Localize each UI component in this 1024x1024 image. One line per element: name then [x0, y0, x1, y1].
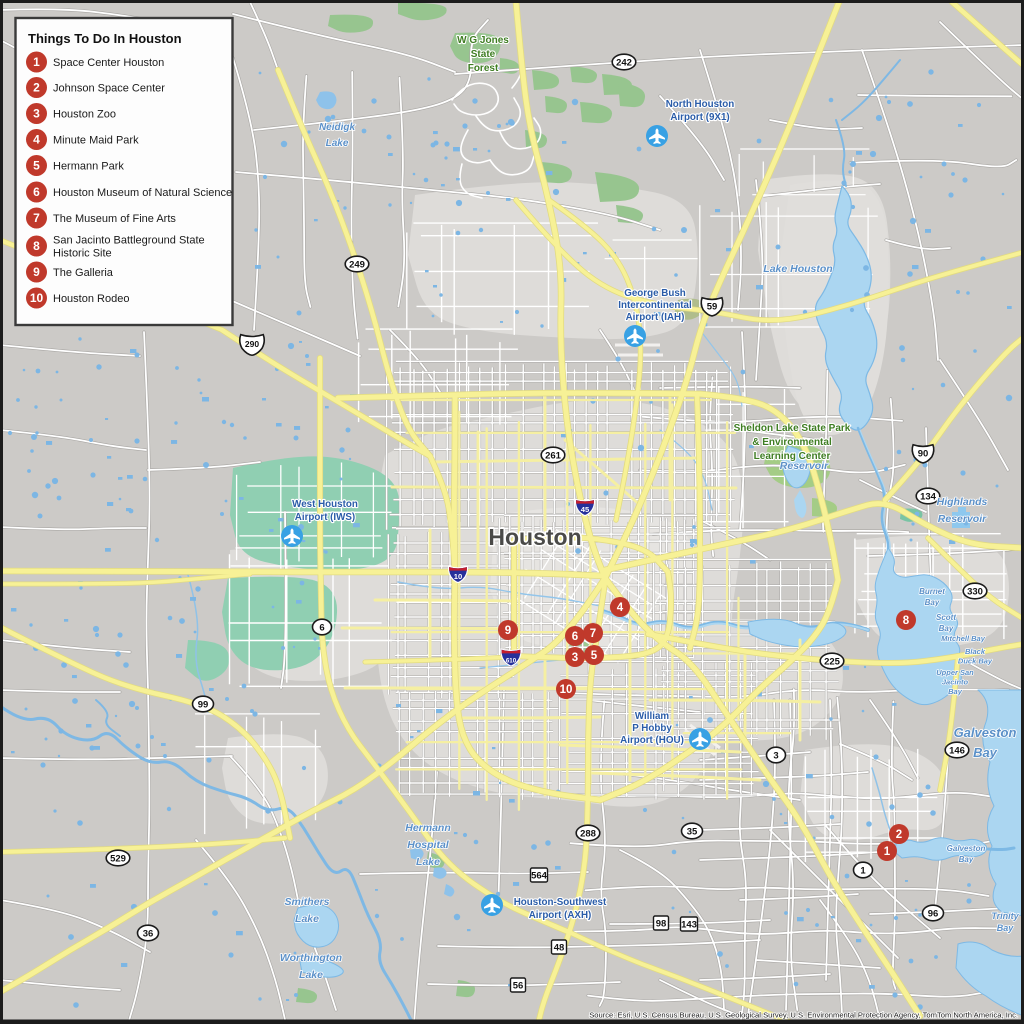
svg-text:P Hobby: P Hobby	[632, 723, 672, 734]
svg-text:Lake: Lake	[416, 856, 440, 868]
svg-text:Minute Maid Park: Minute Maid Park	[53, 135, 139, 147]
svg-text:Airport (IAH): Airport (IAH)	[626, 312, 685, 323]
svg-text:Lake: Lake	[326, 138, 349, 149]
svg-text:98: 98	[656, 918, 667, 929]
svg-text:State: State	[471, 49, 496, 60]
svg-text:Houston-Southwest: Houston-Southwest	[514, 897, 607, 908]
svg-text:Airport (9X1): Airport (9X1)	[670, 112, 729, 123]
svg-text:Smithers: Smithers	[285, 896, 330, 908]
svg-text:Upper San: Upper San	[936, 668, 974, 677]
svg-text:330: 330	[967, 586, 983, 597]
svg-text:Airport (AXH): Airport (AXH)	[529, 910, 592, 921]
svg-text:10: 10	[30, 291, 44, 305]
svg-text:6: 6	[319, 622, 324, 633]
svg-text:146: 146	[949, 745, 965, 756]
svg-text:134: 134	[920, 491, 937, 502]
svg-text:10: 10	[454, 572, 462, 581]
svg-text:Airport (HOU): Airport (HOU)	[620, 735, 684, 746]
svg-text:Galveston: Galveston	[947, 844, 986, 853]
svg-text:Hermann: Hermann	[405, 822, 451, 834]
svg-text:564: 564	[531, 870, 548, 881]
svg-text:Hospital: Hospital	[407, 839, 450, 851]
svg-text:6: 6	[33, 185, 40, 199]
svg-text:9: 9	[33, 265, 40, 279]
svg-text:7: 7	[590, 628, 596, 640]
svg-text:The Museum of Fine Arts: The Museum of Fine Arts	[53, 213, 176, 225]
svg-text:West Houston: West Houston	[292, 499, 358, 510]
svg-text:Things To Do In Houston: Things To Do In Houston	[28, 31, 182, 46]
svg-text:225: 225	[824, 656, 841, 667]
svg-text:Lake Houston: Lake Houston	[763, 263, 832, 275]
svg-text:Neidigk: Neidigk	[319, 122, 356, 133]
svg-text:96: 96	[928, 908, 939, 919]
svg-text:& Environmental: & Environmental	[752, 437, 832, 448]
svg-text:Lake: Lake	[295, 913, 319, 925]
svg-text:Worthington: Worthington	[280, 952, 342, 964]
svg-text:8: 8	[33, 239, 40, 253]
svg-text:Bay: Bay	[959, 855, 974, 864]
svg-text:William: William	[635, 711, 669, 722]
svg-text:7: 7	[33, 211, 40, 225]
svg-text:Lake: Lake	[299, 969, 323, 981]
svg-text:99: 99	[198, 699, 209, 710]
svg-text:Houston Zoo: Houston Zoo	[53, 109, 116, 121]
svg-text:Forest: Forest	[468, 63, 499, 74]
svg-text:8: 8	[903, 615, 910, 627]
svg-text:Bay: Bay	[939, 624, 954, 633]
svg-text:Space Center Houston: Space Center Houston	[53, 57, 164, 69]
svg-text:6: 6	[572, 631, 578, 643]
svg-text:59: 59	[707, 302, 718, 313]
svg-text:Hermann Park: Hermann Park	[53, 161, 124, 173]
svg-text:290: 290	[245, 339, 259, 349]
svg-text:Bay: Bay	[997, 923, 1015, 933]
svg-text:4: 4	[617, 602, 624, 614]
svg-text:Historic Site: Historic Site	[53, 248, 112, 260]
svg-text:Duck Bay: Duck Bay	[958, 657, 993, 666]
svg-text:Highlands: Highlands	[937, 496, 988, 508]
svg-text:Bay: Bay	[948, 687, 963, 696]
svg-text:90: 90	[918, 449, 929, 460]
svg-text:Black: Black	[965, 647, 986, 656]
svg-text:5: 5	[591, 650, 598, 662]
svg-text:North Houston: North Houston	[666, 99, 735, 110]
svg-text:529: 529	[110, 853, 126, 864]
svg-text:610: 610	[506, 658, 517, 665]
svg-text:Johnson Space Center: Johnson Space Center	[53, 83, 165, 95]
svg-text:3: 3	[572, 652, 578, 664]
svg-text:Houston Museum of Natural Scie: Houston Museum of Natural Science	[53, 187, 232, 199]
svg-text:Jacinto: Jacinto	[942, 678, 969, 687]
svg-text:2: 2	[33, 81, 40, 95]
svg-text:George Bush: George Bush	[624, 288, 686, 299]
svg-text:36: 36	[143, 928, 154, 939]
svg-text:Trinity: Trinity	[991, 911, 1019, 921]
svg-text:56: 56	[513, 980, 524, 991]
svg-text:48: 48	[554, 942, 565, 953]
svg-text:9: 9	[505, 625, 511, 637]
svg-text:288: 288	[580, 828, 596, 839]
svg-text:1: 1	[860, 865, 866, 876]
svg-text:35: 35	[687, 826, 698, 837]
svg-text:Intercontinental: Intercontinental	[618, 300, 692, 311]
svg-text:249: 249	[349, 259, 365, 270]
svg-text:Airport (IWS): Airport (IWS)	[295, 512, 355, 523]
svg-text:Reservoir: Reservoir	[938, 513, 987, 525]
svg-text:4: 4	[33, 133, 40, 147]
svg-text:Bay: Bay	[925, 598, 940, 607]
svg-text:1: 1	[884, 846, 891, 858]
svg-text:San Jacinto Battleground State: San Jacinto Battleground State	[53, 235, 205, 247]
svg-text:3: 3	[33, 107, 40, 121]
svg-text:45: 45	[581, 505, 590, 514]
svg-text:Galveston: Galveston	[954, 725, 1017, 740]
svg-text:Mitchell Bay: Mitchell Bay	[941, 634, 986, 643]
svg-text:Houston: Houston	[488, 524, 581, 550]
svg-text:Bay: Bay	[973, 745, 998, 760]
svg-text:143: 143	[681, 919, 697, 930]
svg-text:Source: Esri, U.S. Census Bure: Source: Esri, U.S. Census Bureau, U.S. G…	[589, 1011, 1018, 1020]
svg-text:Scott: Scott	[936, 613, 956, 622]
svg-text:5: 5	[33, 159, 40, 173]
svg-text:Houston Rodeo: Houston Rodeo	[53, 293, 129, 305]
svg-text:W G Jones: W G Jones	[457, 35, 509, 46]
svg-text:242: 242	[616, 57, 632, 68]
svg-text:261: 261	[545, 450, 562, 461]
svg-text:Sheldon Lake State Park: Sheldon Lake State Park	[734, 423, 851, 434]
svg-text:2: 2	[896, 829, 902, 841]
svg-text:3: 3	[773, 750, 778, 761]
svg-text:Reservoir: Reservoir	[780, 460, 829, 472]
svg-text:1: 1	[33, 55, 40, 69]
svg-text:10: 10	[560, 684, 573, 696]
svg-text:Burnet: Burnet	[919, 587, 945, 596]
svg-text:The Galleria: The Galleria	[53, 267, 114, 279]
